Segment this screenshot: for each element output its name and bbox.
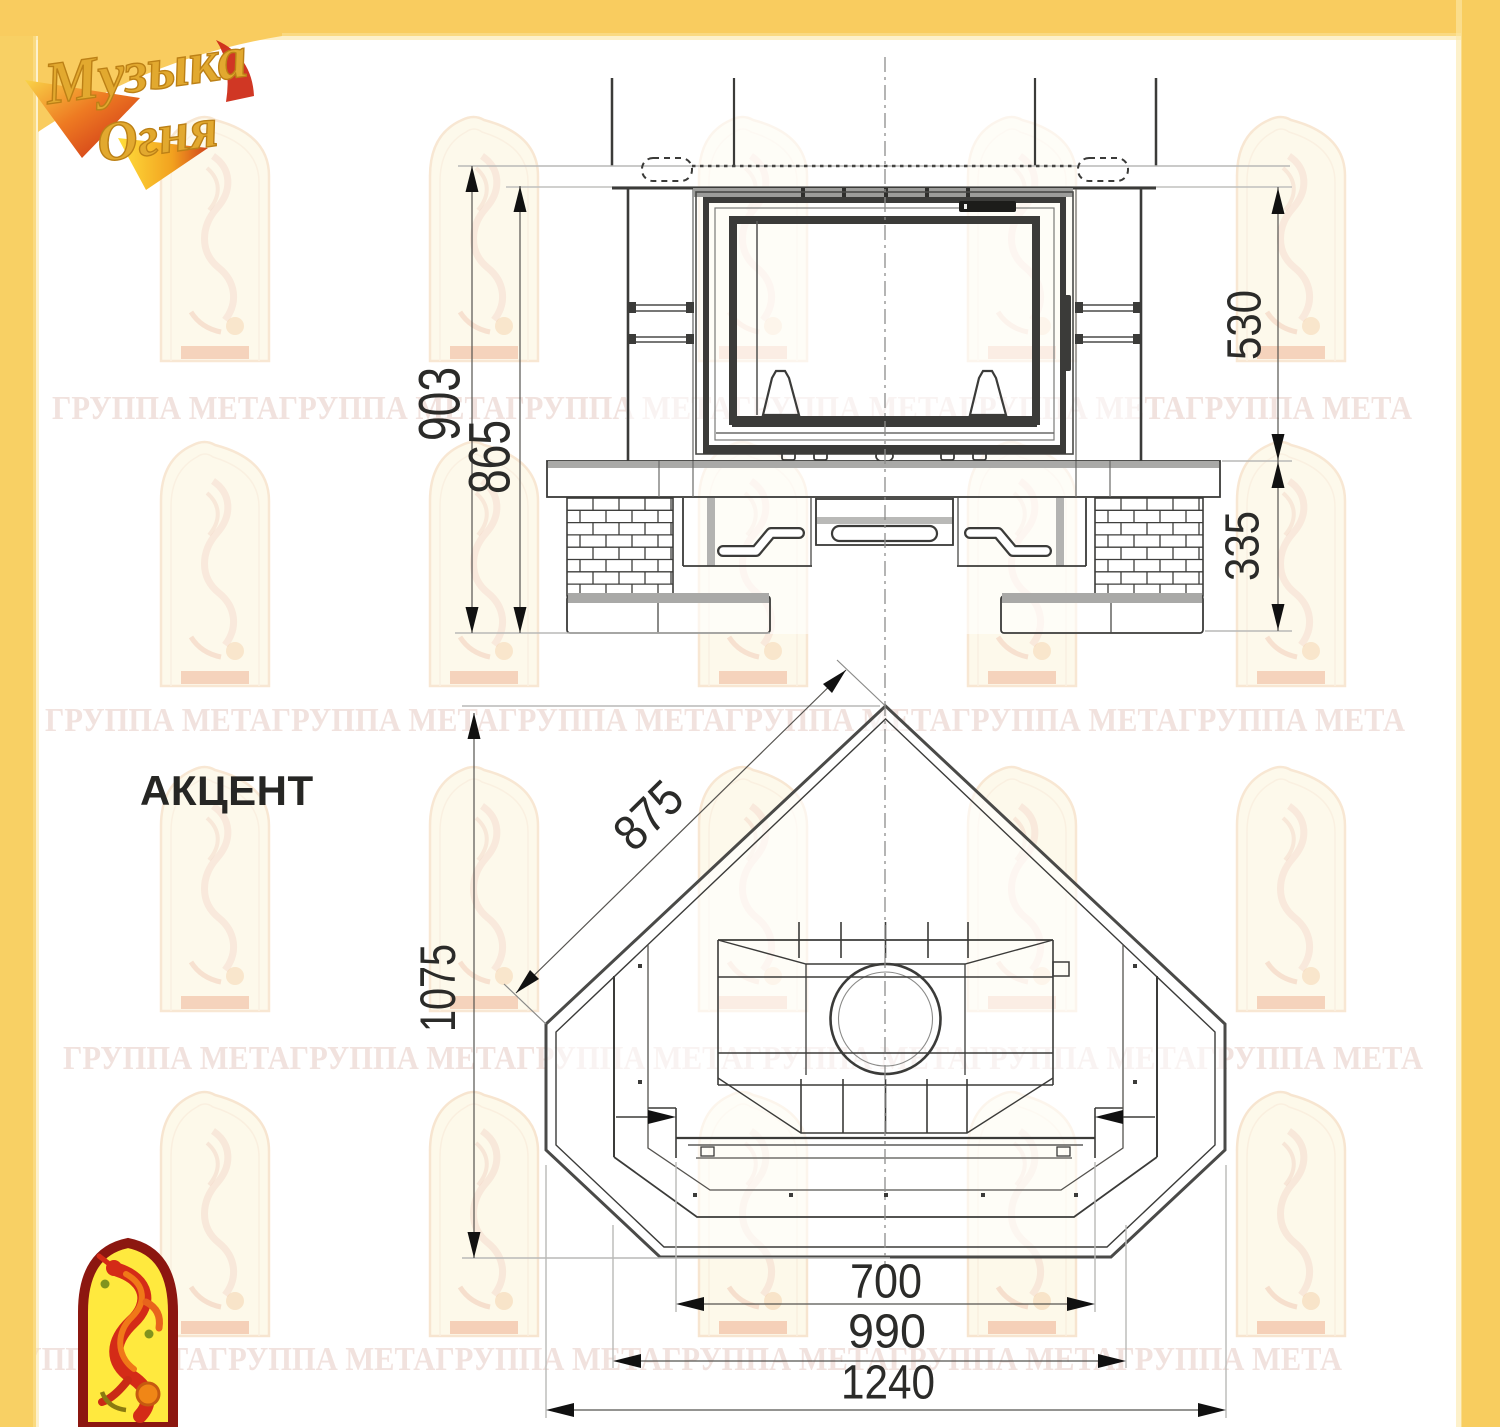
svg-text:700: 700 bbox=[850, 1256, 922, 1309]
svg-text:1075: 1075 bbox=[410, 944, 466, 1032]
svg-text:ГРУППА МЕТАГРУППА МЕТАГРУППА М: ГРУППА МЕТАГРУППА МЕТАГРУППА МЕТАГРУППА … bbox=[45, 702, 1405, 739]
svg-text:1240: 1240 bbox=[841, 1357, 935, 1410]
svg-text:ГРУППА МЕТАГРУППА МЕТАГРУППА М: ГРУППА МЕТАГРУППА МЕТАГРУППА МЕТАГРУППА … bbox=[0, 1341, 1342, 1378]
svg-text:335: 335 bbox=[1217, 511, 1270, 581]
svg-text:865: 865 bbox=[457, 420, 522, 494]
svg-text:990: 990 bbox=[848, 1306, 926, 1359]
svg-text:АКЦЕНТ: АКЦЕНТ bbox=[140, 767, 314, 814]
svg-text:530: 530 bbox=[1219, 290, 1272, 360]
